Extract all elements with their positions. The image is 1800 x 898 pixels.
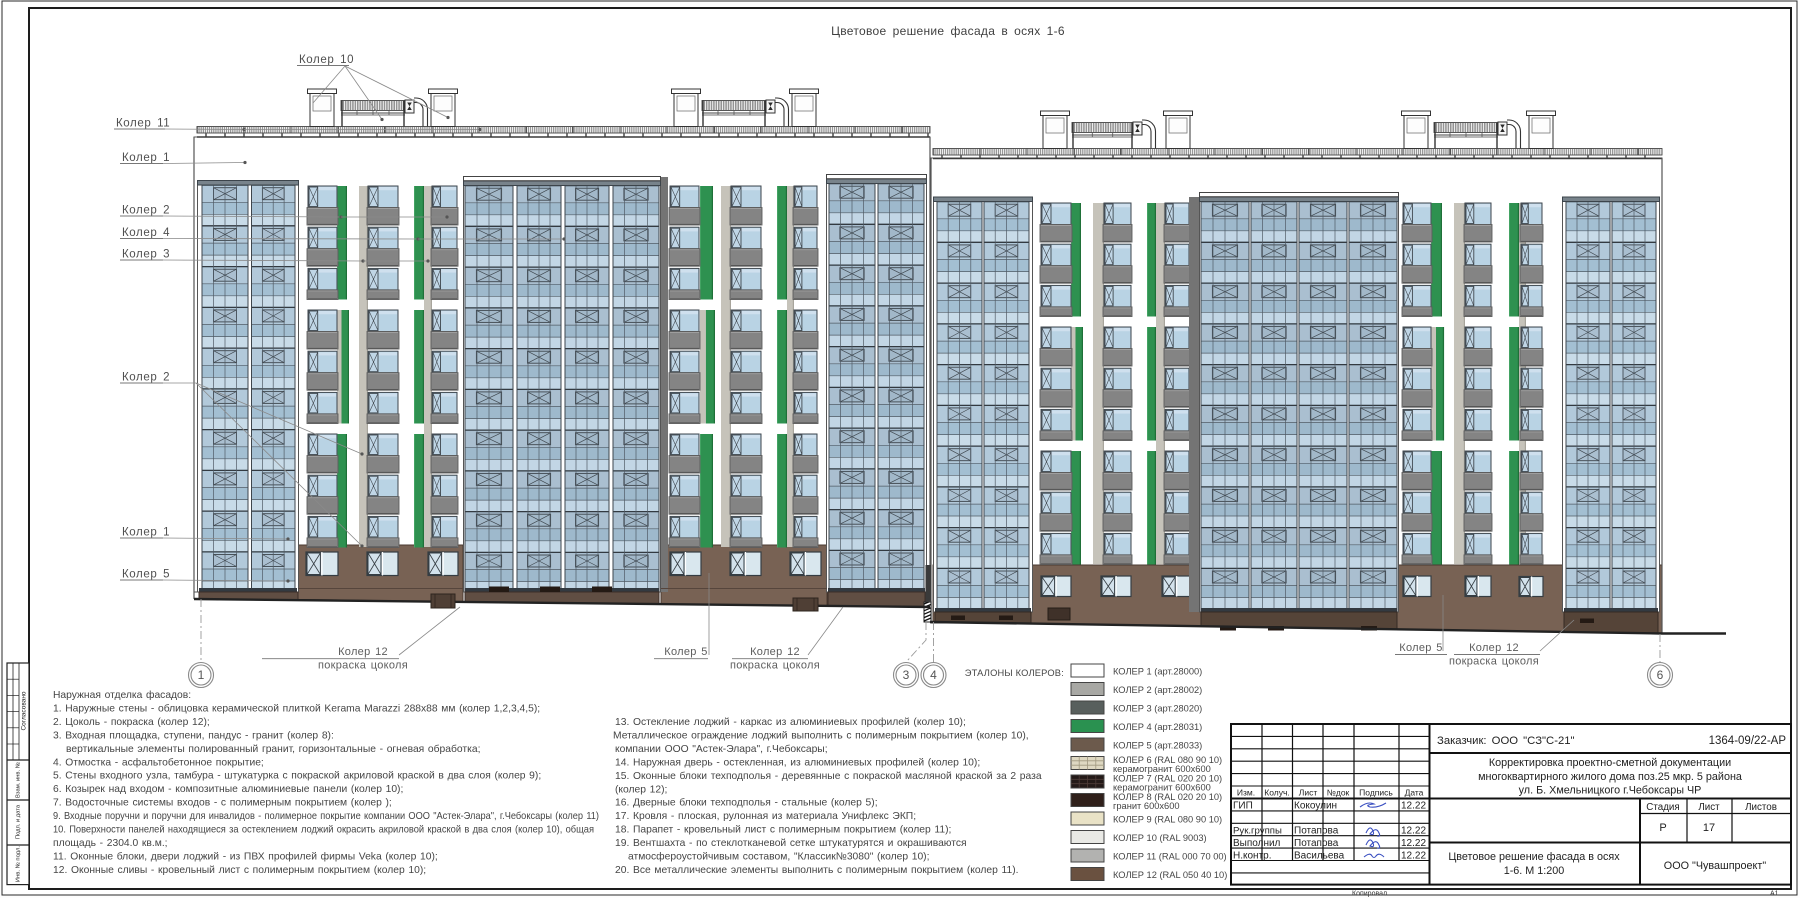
svg-text:Выполнил: Выполнил xyxy=(1233,838,1281,849)
svg-text:покраска цоколя: покраска цоколя xyxy=(318,660,408,672)
svg-text:(колер 12);: (колер 12); xyxy=(615,784,667,795)
svg-text:19. Вентшахта - по стеклоткане: 19. Вентшахта - по стеклотканевой сетке … xyxy=(615,838,967,849)
svg-text:КОЛЕР 5 (арт.28033): КОЛЕР 5 (арт.28033) xyxy=(1113,741,1202,751)
svg-text:Колер 12: Колер 12 xyxy=(750,646,800,658)
svg-text:КОЛЕР 2 (арт.28002): КОЛЕР 2 (арт.28002) xyxy=(1113,685,1202,695)
svg-text:4: 4 xyxy=(930,668,937,682)
svg-text:6: 6 xyxy=(1657,668,1664,682)
svg-text:Колер 5: Колер 5 xyxy=(122,569,170,581)
svg-text:Листов: Листов xyxy=(1745,802,1777,813)
svg-text:Взам. инв. №: Взам. инв. № xyxy=(16,762,22,798)
svg-text:ООО "Чувашпроект": ООО "Чувашпроект" xyxy=(1664,860,1767,872)
svg-text:Стадия: Стадия xyxy=(1646,802,1679,813)
svg-text:Заказчик: ООО "СЗ"С-21": Заказчик: ООО "СЗ"С-21" xyxy=(1437,735,1575,747)
svg-text:Р: Р xyxy=(1659,822,1666,834)
svg-text:Копировал: Копировал xyxy=(1352,891,1387,898)
svg-text:керамогранит 600х600: керамогранит 600х600 xyxy=(1113,783,1211,793)
svg-text:Колер 4: Колер 4 xyxy=(122,227,170,239)
svg-text:Колер 12: Колер 12 xyxy=(1469,642,1519,654)
svg-text:1: 1 xyxy=(198,668,205,682)
svg-text:12. Оконные сливы - кровельный: 12. Оконные сливы - кровельный лист с по… xyxy=(53,865,426,876)
svg-text:вертикальные элементы полирова: вертикальные элементы полированный грани… xyxy=(66,743,480,755)
svg-text:Лист: Лист xyxy=(1299,788,1318,798)
svg-text:керамогранит 600х600: керамогранит 600х600 xyxy=(1113,764,1211,774)
svg-text:Подп. и дата: Подп. и дата xyxy=(16,804,22,839)
svg-text:ГИП: ГИП xyxy=(1233,801,1253,812)
svg-text:5. Стены входного узла, тамбур: 5. Стены входного узла, тамбура - штукат… xyxy=(53,770,541,782)
svg-text:12.22: 12.22 xyxy=(1401,838,1426,849)
svg-text:17. Кровля - плоская, рулонная: 17. Кровля - плоская, рулонная из матери… xyxy=(615,810,916,822)
svg-text:гранит 600х600: гранит 600х600 xyxy=(1113,801,1180,811)
svg-text:9. Входные поручни и поручни д: 9. Входные поручни и поручни для инвалид… xyxy=(53,810,599,822)
svg-text:Колер 1: Колер 1 xyxy=(122,152,170,164)
svg-text:Колер 5: Колер 5 xyxy=(1399,642,1442,654)
svg-text:Кокоулин: Кокоулин xyxy=(1294,801,1337,812)
svg-text:4. Отмостка - асфальтобетонное: 4. Отмостка - асфальтобетонное покрытие; xyxy=(53,756,264,768)
svg-text:Корректировка проектно-сметной: Корректировка проектно-сметной документа… xyxy=(1489,757,1731,769)
svg-text:Цветовое решение фасада в осях: Цветовое решение фасада в осях xyxy=(1448,851,1620,863)
svg-text:18. Парапет - кровельный лист: 18. Парапет - кровельный лист с полимерн… xyxy=(615,825,951,836)
svg-text:6. Козырек над входом - композ: 6. Козырек над входом - композитные алюм… xyxy=(53,784,403,795)
svg-text:17: 17 xyxy=(1703,822,1715,834)
svg-text:Наружная отделка фасадов:: Наружная отделка фасадов: xyxy=(53,689,191,701)
svg-text:Колер 11: Колер 11 xyxy=(116,118,170,130)
svg-text:ул. Б. Хмельницкого г.Чебокс: ул. Б. Хмельницкого г.Чебоксары ЧР xyxy=(1519,785,1702,797)
svg-text:КОЛЕР 1 (арт.28000): КОЛЕР 1 (арт.28000) xyxy=(1113,667,1202,677)
svg-text:Изм.: Изм. xyxy=(1237,788,1255,798)
svg-text:КОЛЕР 4 (арт.28031): КОЛЕР 4 (арт.28031) xyxy=(1113,722,1202,732)
svg-text:Колер 5: Колер 5 xyxy=(664,646,707,658)
svg-text:КОЛЕР 9 (RAL 080 90 10): КОЛЕР 9 (RAL 080 90 10) xyxy=(1113,815,1222,825)
svg-text:Колуч.: Колуч. xyxy=(1264,788,1290,798)
svg-text:Металлическое ограждение лоджи: Металлическое ограждение лоджий выполнит… xyxy=(613,731,1029,742)
svg-text:ЭТАЛОНЫ КОЛЕРОВ:: ЭТАЛОНЫ КОЛЕРОВ: xyxy=(965,668,1064,678)
svg-text:площадь - 2304.0 кв.м.;: площадь - 2304.0 кв.м.; xyxy=(53,838,168,849)
svg-text:12.22: 12.22 xyxy=(1401,801,1426,812)
svg-text:12.22: 12.22 xyxy=(1401,826,1426,837)
svg-text:КОЛЕР 12 (RAL 050 40 10): КОЛЕР 12 (RAL 050 40 10) xyxy=(1113,870,1227,880)
svg-text:компании ООО "Астек-Элара", г.: компании ООО "Астек-Элара", г.Чебоксары; xyxy=(615,743,828,755)
svg-text:14. Наружная дверь - остекленн: 14. Наружная дверь - остекленная, из алю… xyxy=(615,756,980,768)
svg-text:Колер 3: Колер 3 xyxy=(122,249,170,261)
svg-text:А1: А1 xyxy=(1770,891,1779,898)
svg-text:10. Поверхности панелей находя: 10. Поверхности панелей находящиеся за о… xyxy=(53,824,594,836)
svg-text:Колер 2: Колер 2 xyxy=(122,372,170,384)
svg-text:12.22: 12.22 xyxy=(1401,851,1426,862)
svg-text:Колер 12: Колер 12 xyxy=(338,646,388,658)
svg-text:1364-09/22-АР: 1364-09/22-АР xyxy=(1709,735,1787,747)
svg-text:КОЛЕР 11 (RAL 000 70 00): КОЛЕР 11 (RAL 000 70 00) xyxy=(1113,852,1227,862)
svg-text:покраска цоколя: покраска цоколя xyxy=(1449,656,1539,668)
svg-text:20. Все металлические элементы: 20. Все металлические элементы выполнить… xyxy=(615,865,1019,876)
svg-text:Лист: Лист xyxy=(1698,802,1720,813)
svg-text:Колер 2: Колер 2 xyxy=(122,205,170,217)
svg-text:13. Остекление лоджий - каркас: 13. Остекление лоджий - каркас из алюмин… xyxy=(615,716,966,728)
svg-text:Колер 10: Колер 10 xyxy=(299,54,354,66)
svg-text:Васильева: Васильева xyxy=(1294,851,1345,862)
svg-text:Подпись: Подпись xyxy=(1359,788,1393,798)
svg-text:16. Дверные блоки техподполья: 16. Дверные блоки техподполья - стальные… xyxy=(615,797,878,809)
svg-text:атмосфероустойчивым составом,: атмосфероустойчивым составом, "Классик№3… xyxy=(628,851,929,863)
svg-text:15. Оконные блоки техподполья: 15. Оконные блоки техподполья - деревянн… xyxy=(615,770,1042,782)
svg-text:многоквартирного жилого дома п: многоквартирного жилого дома поз.25 мкр.… xyxy=(1478,771,1742,783)
svg-text:Н.контр.: Н.контр. xyxy=(1233,851,1272,862)
svg-text:Цветовое решение фасада в осях: Цветовое решение фасада в осях 1-6 xyxy=(831,24,1065,38)
svg-text:3: 3 xyxy=(903,668,910,682)
svg-text:Дата: Дата xyxy=(1405,788,1424,798)
svg-text:3. Входная площадка, ступени,: 3. Входная площадка, ступени, пандус - г… xyxy=(53,730,334,741)
svg-text:Инв. № подл.: Инв. № подл. xyxy=(16,846,22,882)
svg-text:КОЛЕР 10 (RAL 9003): КОЛЕР 10 (RAL 9003) xyxy=(1113,833,1207,843)
svg-text:2. Цоколь - покраска (колер 12: 2. Цоколь - покраска (колер 12); xyxy=(53,717,210,728)
svg-text:№док: №док xyxy=(1327,788,1350,798)
svg-text:1-6. М 1:200: 1-6. М 1:200 xyxy=(1504,865,1565,877)
svg-text:11. Оконные блоки, двери лоджи: 11. Оконные блоки, двери лоджий - из ПВХ… xyxy=(53,850,438,862)
svg-text:Потапова: Потапова xyxy=(1294,826,1339,837)
svg-text:Колер 1: Колер 1 xyxy=(122,527,170,539)
svg-text:Рук.группы: Рук.группы xyxy=(1233,826,1282,837)
svg-text:Согласовано: Согласовано xyxy=(21,691,28,730)
svg-text:покраска цоколя: покраска цоколя xyxy=(730,660,820,672)
svg-text:Потапова: Потапова xyxy=(1294,838,1339,849)
svg-text:КОЛЕР 3 (арт.28020): КОЛЕР 3 (арт.28020) xyxy=(1113,704,1202,714)
svg-text:1. Наружные стены - облицовка: 1. Наружные стены - облицовка керамическ… xyxy=(53,703,540,715)
svg-text:7. Водосточные системы входов: 7. Водосточные системы входов - с полиме… xyxy=(53,798,392,809)
